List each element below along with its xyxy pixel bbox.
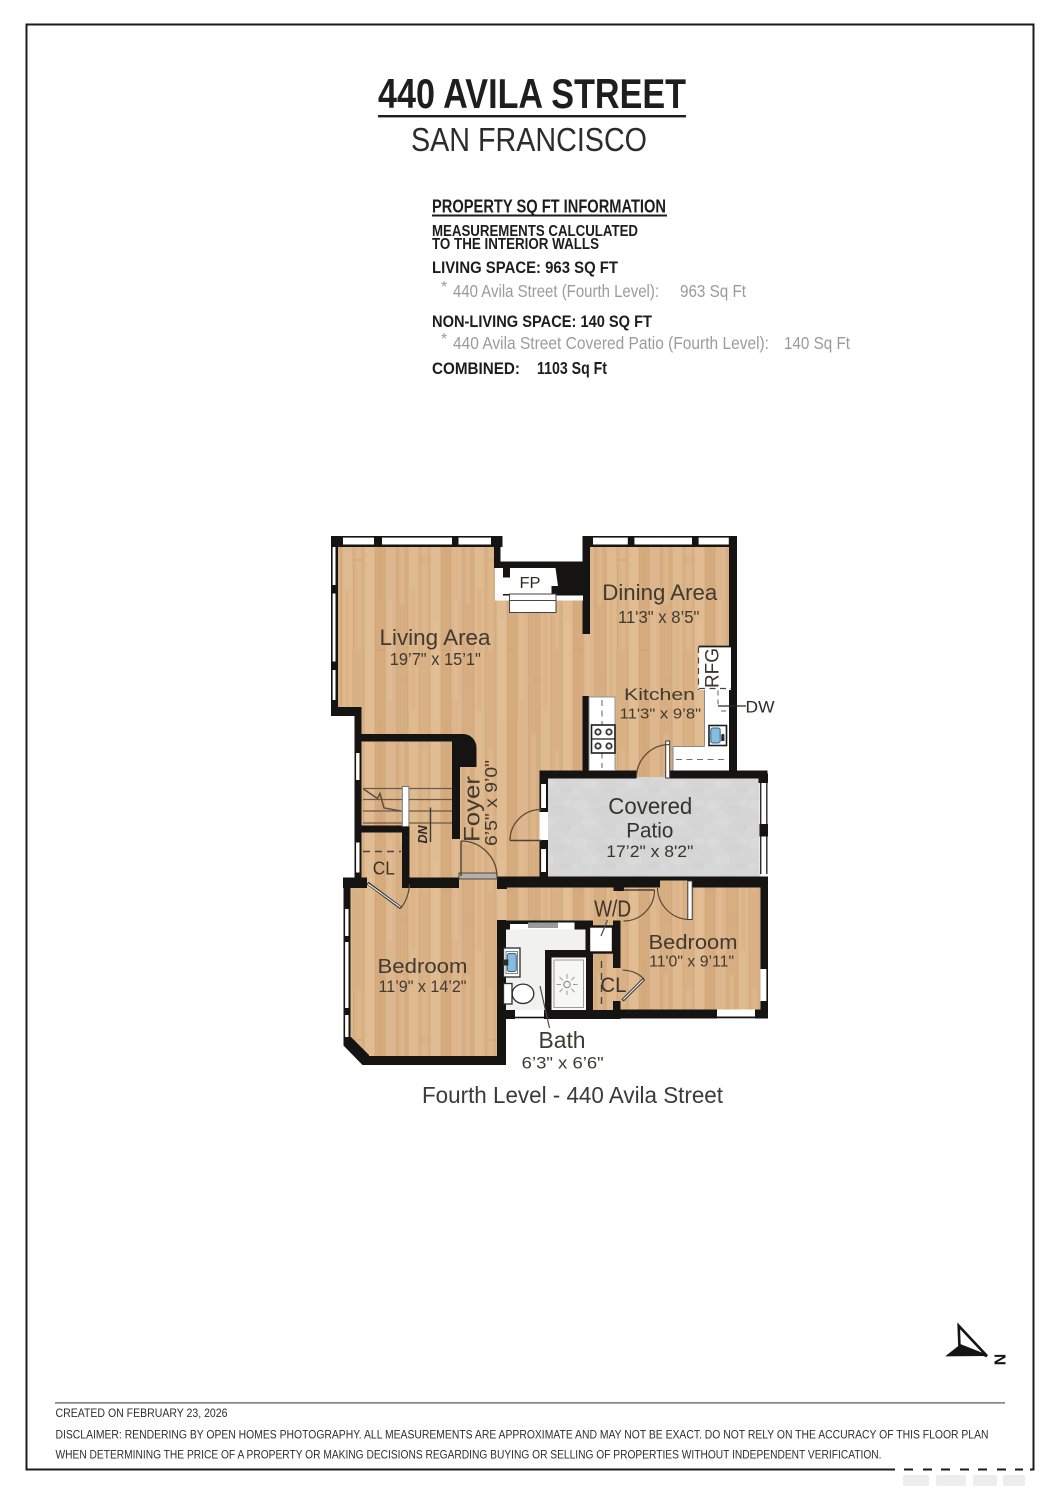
svg-text:TO THE INTERIOR WALLS: TO THE INTERIOR WALLS (432, 236, 599, 253)
svg-text:Dining Area: Dining Area (602, 580, 718, 605)
svg-text:Living Area: Living Area (380, 625, 492, 650)
svg-text:*: * (441, 331, 447, 348)
svg-text:CREATED ON FEBRUARY 23, 2026: CREATED ON FEBRUARY 23, 2026 (56, 1408, 228, 1420)
svg-text:WHEN DETERMINING THE PRICE OF: WHEN DETERMINING THE PRICE OF A PROPERTY… (56, 1450, 882, 1462)
svg-text:1103 Sq Ft: 1103 Sq Ft (537, 358, 607, 378)
svg-text:LIVING SPACE: 963 SQ FT: LIVING SPACE: 963 SQ FT (432, 258, 619, 277)
svg-text:17’2" x 8'2": 17’2" x 8'2" (606, 842, 693, 861)
svg-text:CL: CL (373, 858, 395, 879)
svg-text:DN: DN (416, 825, 430, 844)
svg-text:CL: CL (600, 974, 626, 997)
svg-text:963 Sq Ft: 963 Sq Ft (680, 281, 746, 301)
svg-text:Bedroom: Bedroom (378, 956, 468, 978)
svg-text:11’9" x 14’2": 11’9" x 14’2" (379, 978, 467, 996)
svg-text:440 Avila Street (Fourth Level: 440 Avila Street (Fourth Level): (453, 281, 659, 301)
svg-text:6’3" x 6’6": 6’3" x 6’6" (522, 1054, 604, 1072)
svg-text:Patio: Patio (626, 819, 673, 843)
svg-text:NON-LIVING SPACE: 140 SQ FT: NON-LIVING SPACE: 140 SQ FT (432, 312, 653, 331)
svg-text:Bedroom: Bedroom (649, 932, 738, 954)
svg-text:140 Sq Ft: 140 Sq Ft (784, 333, 850, 353)
svg-text:PROPERTY SQ FT INFORMATION: PROPERTY SQ FT INFORMATION (432, 197, 666, 217)
svg-text:Bath: Bath (539, 1027, 586, 1053)
svg-text:SAN FRANCISCO: SAN FRANCISCO (411, 121, 647, 158)
svg-text:W/D: W/D (594, 896, 631, 922)
svg-text:N: N (990, 1354, 1007, 1366)
svg-text:11'3" x 8’5": 11'3" x 8’5" (618, 607, 700, 627)
svg-text:19’7" x 15’1": 19’7" x 15’1" (390, 649, 481, 669)
svg-text:*: * (441, 279, 447, 296)
svg-text:Kitchen: Kitchen (624, 686, 695, 704)
svg-text:FP: FP (520, 575, 541, 592)
svg-text:6’5" x 9’0": 6’5" x 9’0" (481, 760, 501, 846)
svg-text:RFG: RFG (703, 648, 724, 688)
svg-text:11'3" x 9’8": 11'3" x 9’8" (620, 706, 702, 722)
svg-text:440 AVILA STREET: 440 AVILA STREET (378, 70, 686, 117)
svg-text:Covered: Covered (608, 793, 692, 819)
svg-text:11'0" x 9’11": 11'0" x 9’11" (649, 954, 734, 971)
svg-text:Fourth Level - 440 Avila Stree: Fourth Level - 440 Avila Street (422, 1082, 723, 1108)
svg-text:440 Avila Street Covered Patio: 440 Avila Street Covered Patio (Fourth L… (453, 333, 769, 353)
svg-text:COMBINED:: COMBINED: (432, 359, 520, 378)
svg-text:DISCLAIMER: RENDERING BY OPEN: DISCLAIMER: RENDERING BY OPEN HOMES PHOT… (56, 1430, 989, 1442)
svg-text:DW: DW (746, 699, 775, 717)
